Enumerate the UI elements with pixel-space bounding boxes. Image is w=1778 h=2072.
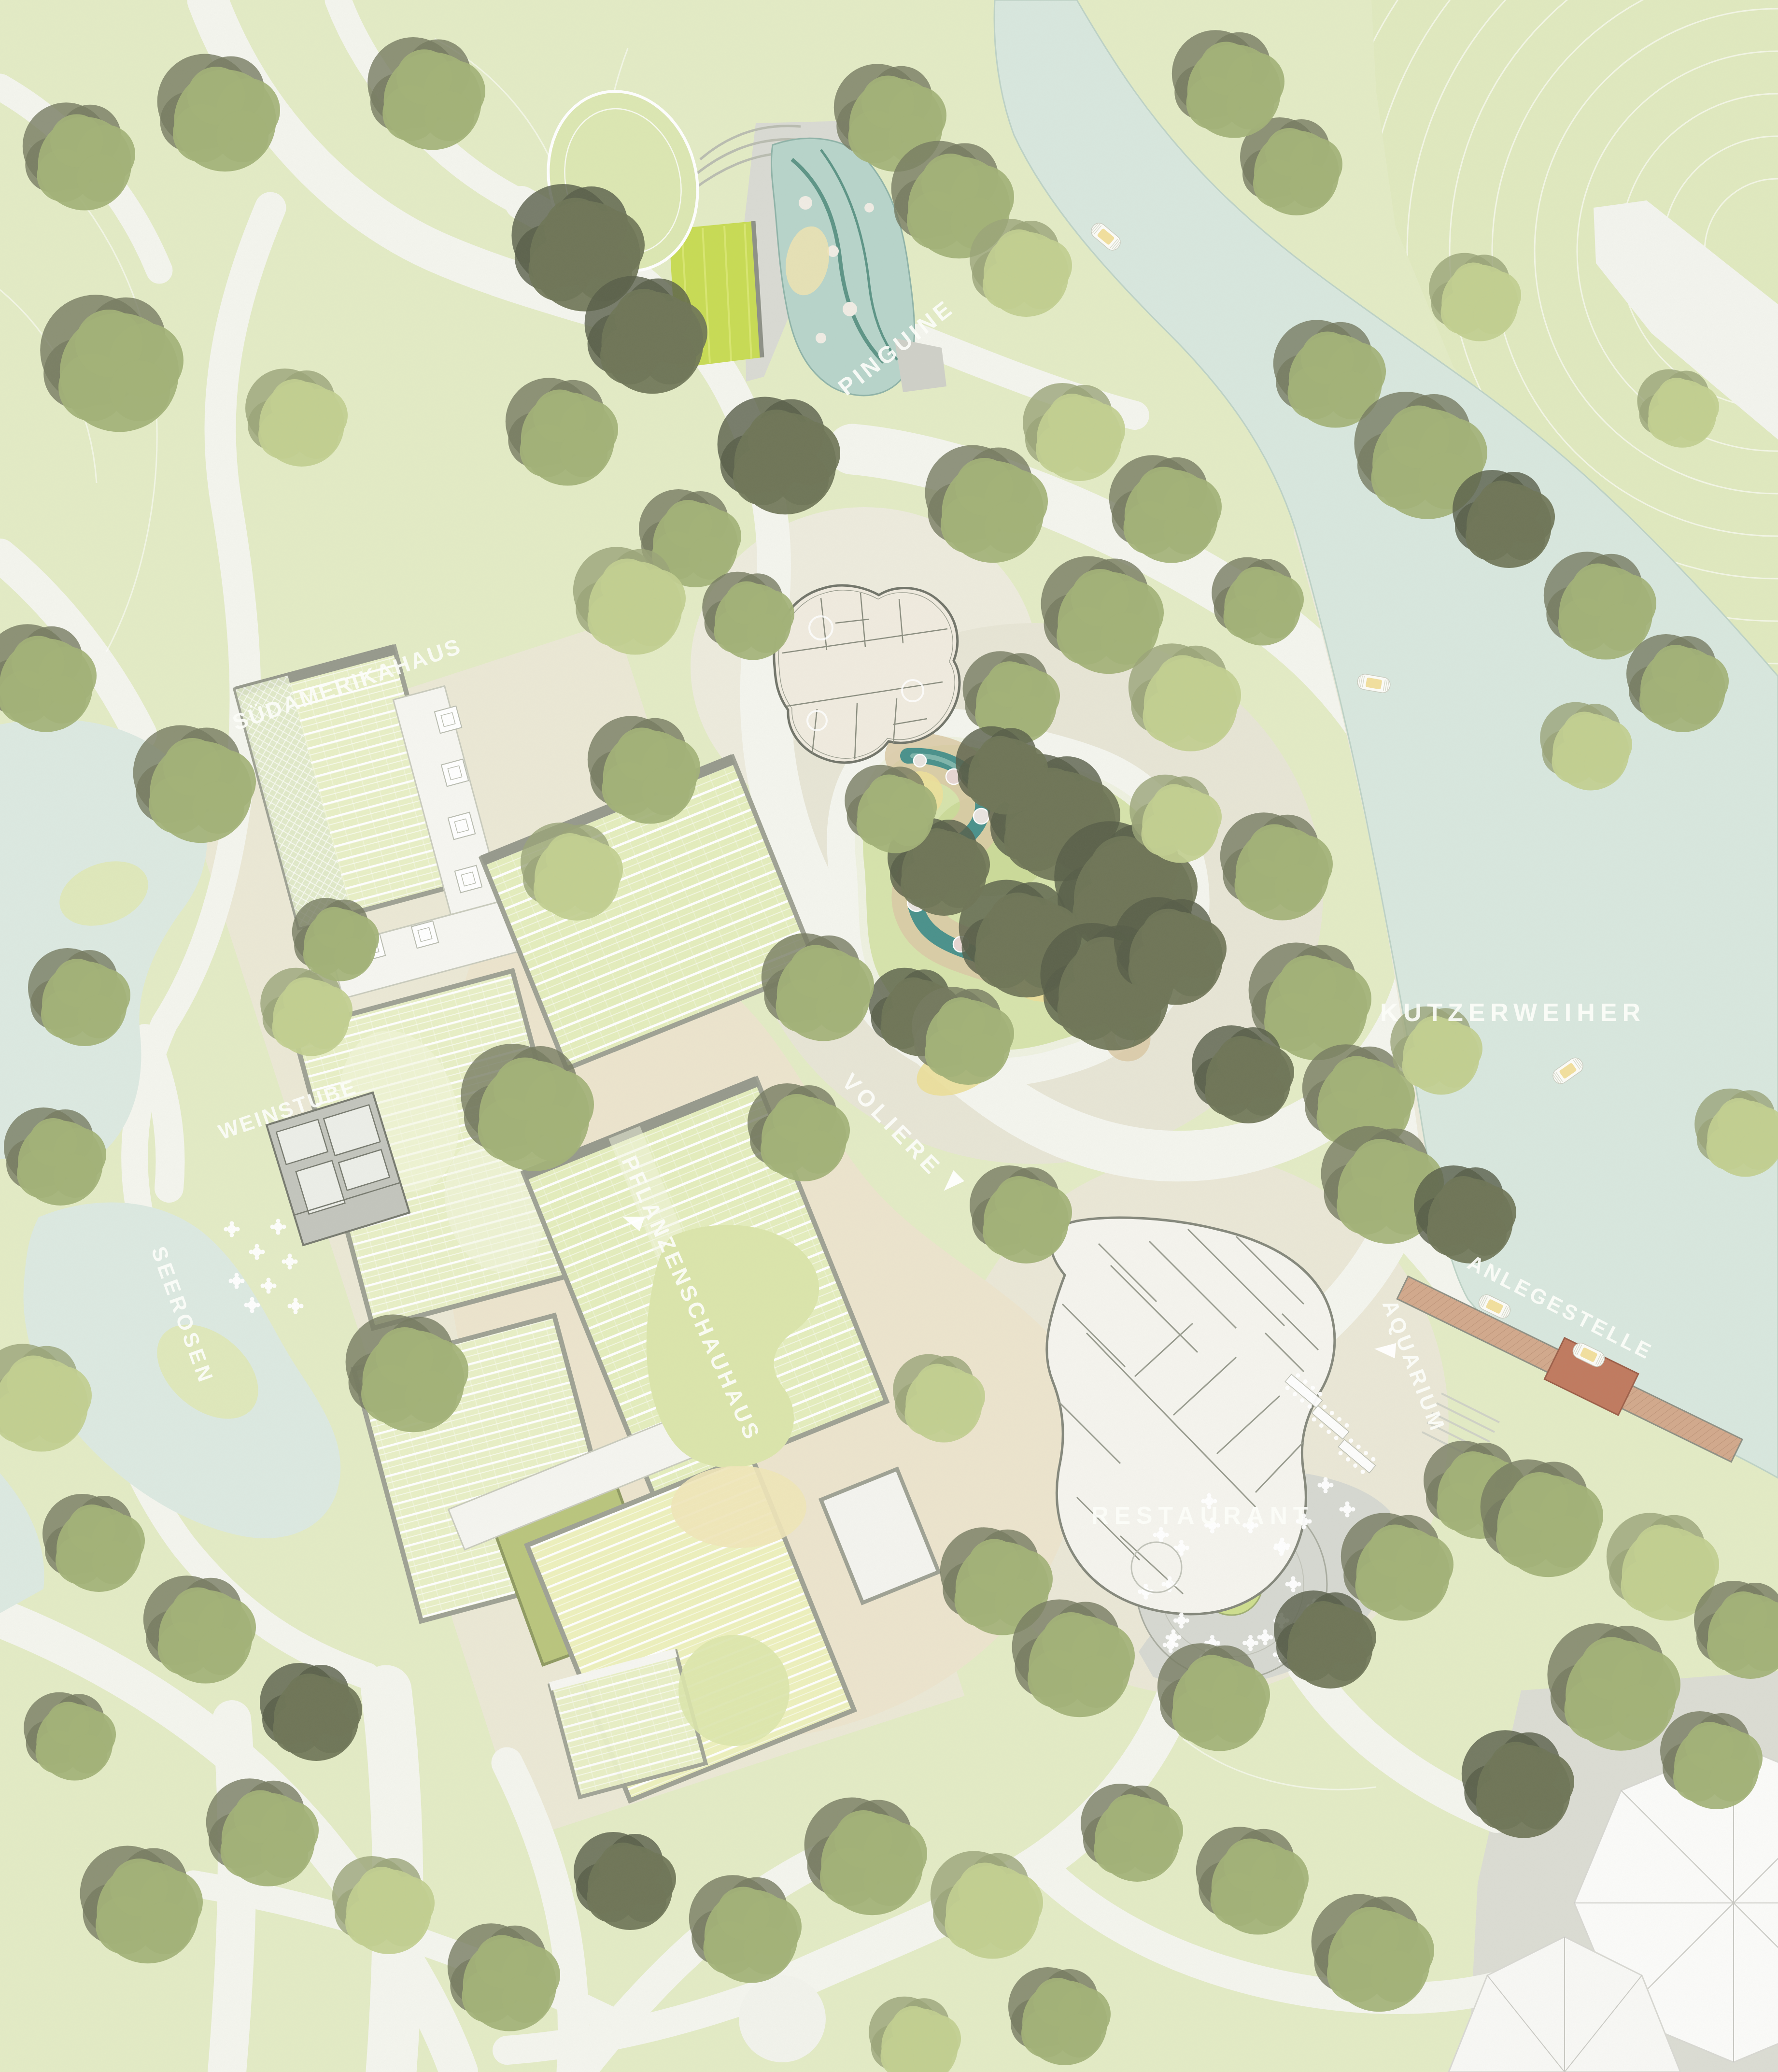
site-plan: PINGUINESÜDAMERIKAHAUSWEINSTUBESEEROSENP… bbox=[0, 0, 1778, 2072]
label-restaurant: RESTAURANT bbox=[1091, 1502, 1314, 1529]
label-kutzerweiher: KUTZERWEIHER bbox=[1380, 998, 1646, 1026]
paper-texture bbox=[0, 0, 1778, 2072]
site-plan-canvas: PINGUINESÜDAMERIKAHAUSWEINSTUBESEEROSENP… bbox=[0, 0, 1778, 2072]
